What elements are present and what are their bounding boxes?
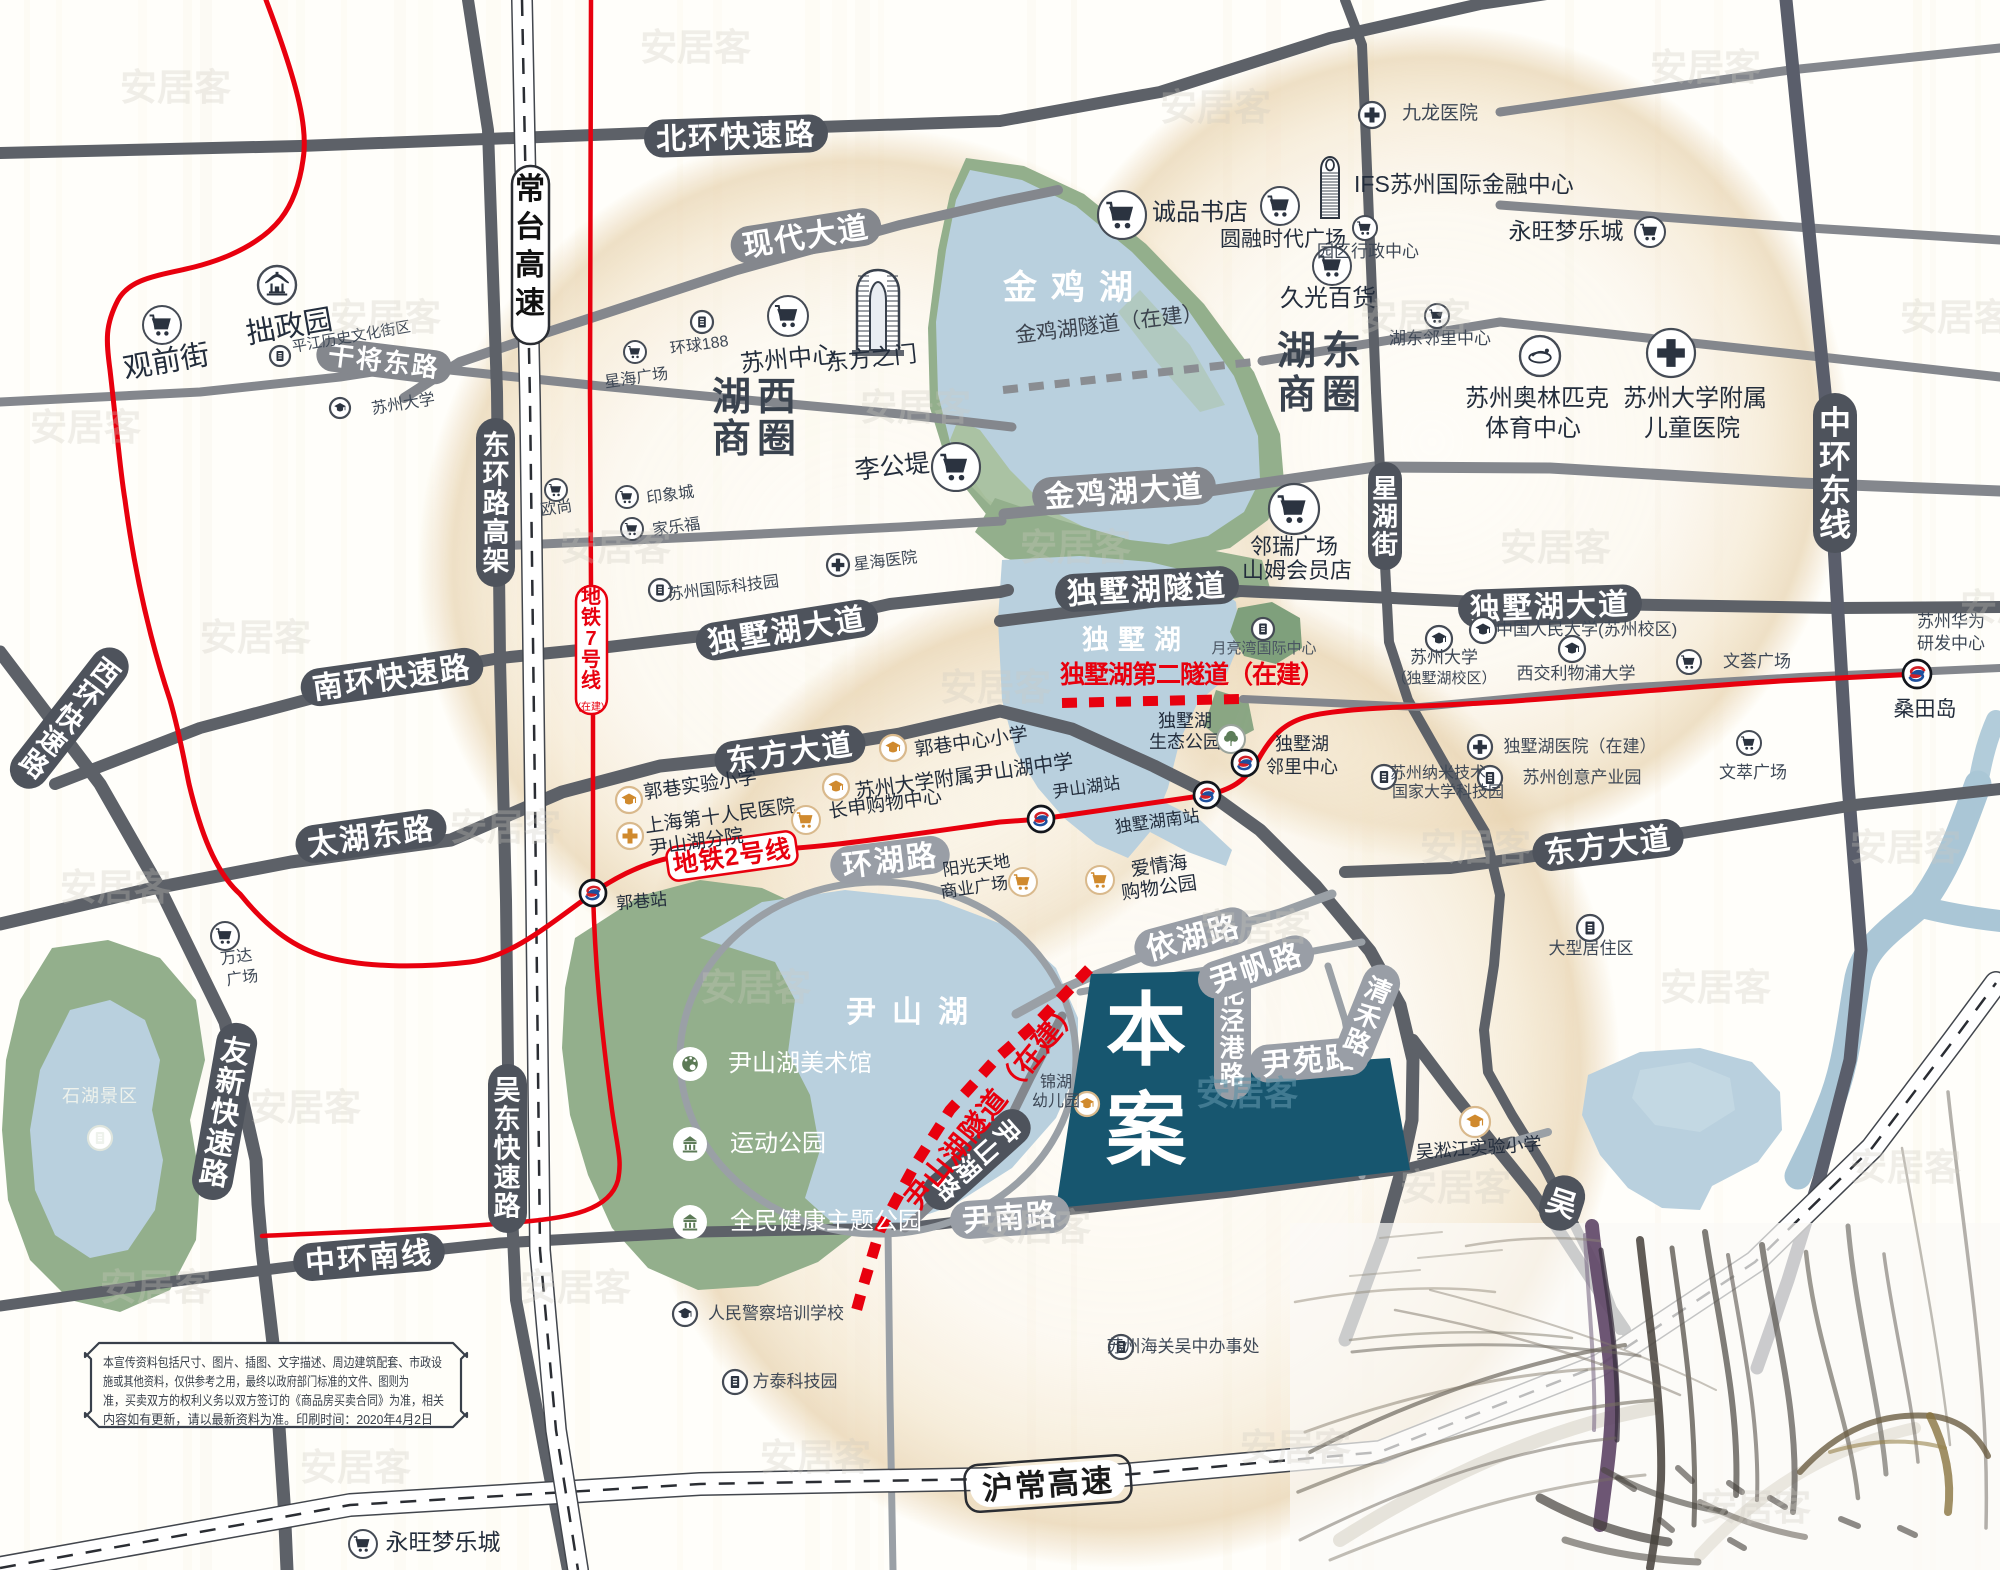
- svg-text:北环快速路: 北环快速路: [656, 118, 817, 157]
- svg-text:快: 快: [494, 1134, 522, 1164]
- svg-text:湖: 湖: [1372, 501, 1398, 531]
- svg-text:路: 路: [494, 1191, 522, 1222]
- svg-text:中: 中: [1819, 405, 1851, 441]
- svg-text:邻瑞广场: 邻瑞广场: [1250, 534, 1338, 559]
- svg-text:安居客: 安居客: [1850, 1147, 1961, 1188]
- svg-text:安居客: 安居客: [1650, 47, 1761, 88]
- svg-text:锦湖: 锦湖: [1040, 1073, 1072, 1091]
- svg-text:铁: 铁: [581, 605, 601, 629]
- svg-text:九龙医院: 九龙医院: [1402, 102, 1478, 124]
- svg-text:安居客: 安居客: [1420, 827, 1531, 868]
- svg-text:星: 星: [1372, 473, 1398, 503]
- svg-text:文萃广场: 文萃广场: [1719, 763, 1787, 782]
- svg-text:东: 东: [483, 430, 510, 461]
- svg-text:东: 东: [494, 1104, 521, 1135]
- svg-text:文荟广场: 文荟广场: [1723, 652, 1791, 671]
- svg-text:港: 港: [1219, 1034, 1245, 1063]
- svg-text:安居客: 安居客: [200, 617, 311, 658]
- svg-text:体育中心: 体育中心: [1485, 415, 1581, 442]
- svg-text:安居客: 安居客: [940, 667, 1051, 708]
- svg-text:线: 线: [1819, 507, 1851, 543]
- svg-text:地: 地: [581, 585, 601, 608]
- svg-text:桑田岛: 桑田岛: [1894, 698, 1957, 721]
- svg-text:安居客: 安居客: [450, 807, 561, 848]
- svg-text:常: 常: [515, 173, 545, 206]
- svg-text:安居客: 安居客: [1660, 967, 1771, 1008]
- svg-text:永旺梦乐城: 永旺梦乐城: [386, 1529, 501, 1555]
- svg-text:月亮湾国际中心: 月亮湾国际中心: [1211, 640, 1316, 657]
- svg-text:独墅湖: 独墅湖: [1158, 711, 1212, 731]
- svg-text:全民健康主题公园: 全民健康主题公园: [730, 1208, 922, 1235]
- svg-text:湖西: 湖西: [712, 376, 802, 419]
- svg-text:环: 环: [1819, 439, 1851, 475]
- svg-text:方泰科技园: 方泰科技园: [753, 1372, 838, 1391]
- svg-text:施或其他资料，仅供参考之用，最终以政府部门标准的文件、图则为: 施或其他资料，仅供参考之用，最终以政府部门标准的文件、图则为: [103, 1374, 409, 1389]
- svg-text:安居客: 安居客: [1850, 827, 1961, 868]
- svg-text:西交利物浦大学: 西交利物浦大学: [1517, 664, 1636, 683]
- svg-text:台: 台: [515, 210, 545, 244]
- svg-text:安居客: 安居客: [60, 867, 171, 908]
- svg-text:街: 街: [1371, 529, 1398, 559]
- svg-text:安居客: 安居客: [980, 1207, 1091, 1248]
- svg-text:线: 线: [581, 668, 601, 692]
- svg-text:安居客: 安居客: [300, 1447, 411, 1488]
- svg-text:速: 速: [515, 287, 545, 320]
- svg-text:邻里中心: 邻里中心: [1266, 757, 1338, 777]
- svg-text:安居客: 安居客: [1700, 1487, 1811, 1528]
- svg-text:人民警察培训学校: 人民警察培训学校: [708, 1304, 844, 1323]
- svg-text:速: 速: [494, 1163, 521, 1193]
- svg-text:7: 7: [585, 628, 596, 650]
- svg-text:安居客: 安居客: [1500, 527, 1611, 568]
- svg-text:安居客: 安居客: [640, 27, 751, 68]
- svg-text:金鸡湖: 金鸡湖: [1002, 268, 1147, 307]
- svg-text:安居客: 安居客: [1960, 587, 2000, 628]
- svg-text:生态公园: 生态公园: [1149, 732, 1221, 752]
- svg-text:号: 号: [581, 648, 601, 671]
- svg-text:本宣传资料包括尺寸、图片、插图、文字描述、周边建筑配套、市政: 本宣传资料包括尺寸、图片、插图、文字描述、周边建筑配套、市政设: [103, 1355, 442, 1370]
- svg-text:安居客: 安居客: [1196, 1074, 1298, 1113]
- svg-text:安居客: 安居客: [700, 967, 811, 1008]
- svg-text:诚品书店: 诚品书店: [1152, 199, 1248, 226]
- svg-text:安居客: 安居客: [120, 67, 231, 108]
- svg-text:架: 架: [483, 547, 510, 577]
- svg-text:路: 路: [483, 488, 511, 519]
- svg-text:环: 环: [483, 460, 510, 490]
- svg-text:东: 东: [1819, 473, 1851, 509]
- svg-text:苏州纳米技术: 苏州纳米技术: [1390, 764, 1486, 782]
- svg-text:案: 案: [1106, 1086, 1187, 1175]
- svg-text:泾: 泾: [1219, 1008, 1244, 1036]
- svg-text:儿童医院: 儿童医院: [1644, 415, 1740, 442]
- svg-text:独墅湖: 独墅湖: [1082, 625, 1190, 655]
- svg-text:山姆会员店: 山姆会员店: [1242, 558, 1352, 583]
- svg-text:IFS苏州国际金融中心: IFS苏州国际金融中心: [1354, 171, 1574, 197]
- svg-text:安居客: 安居客: [560, 527, 671, 568]
- svg-text:安居客: 安居客: [250, 1087, 361, 1128]
- svg-text:吴: 吴: [494, 1076, 521, 1106]
- svg-text:幼儿园: 幼儿园: [1032, 1092, 1080, 1110]
- svg-text:中国人民大学(苏州校区): 中国人民大学(苏州校区): [1496, 620, 1677, 639]
- svg-text:高: 高: [483, 517, 510, 548]
- svg-text:安居客: 安居客: [520, 1267, 631, 1308]
- svg-text:独墅湖第二隧道（在建）: 独墅湖第二隧道（在建）: [1060, 660, 1324, 689]
- svg-text:安居客: 安居客: [1360, 297, 1471, 338]
- svg-text:高: 高: [515, 249, 545, 282]
- svg-text:苏州大学附属: 苏州大学附属: [1623, 385, 1767, 412]
- svg-text:商圈: 商圈: [1277, 374, 1367, 417]
- svg-text:安居客: 安居客: [100, 1267, 211, 1308]
- svg-text:安居客: 安居客: [1160, 87, 1271, 128]
- svg-text:湖东: 湖东: [1277, 330, 1367, 373]
- svg-text:商圈: 商圈: [712, 418, 802, 461]
- svg-text:安居客: 安居客: [760, 1437, 871, 1478]
- svg-text:运动公园: 运动公园: [730, 1130, 826, 1157]
- svg-text:安居客: 安居客: [330, 297, 441, 338]
- svg-text:研发中心: 研发中心: [1917, 634, 1985, 653]
- svg-text:独墅湖: 独墅湖: [1275, 734, 1329, 754]
- svg-text:石湖景区: 石湖景区: [62, 1086, 138, 1106]
- svg-text:安居客: 安居客: [1400, 1167, 1511, 1208]
- svg-text:大型居住区: 大型居住区: [1549, 939, 1634, 958]
- svg-text:园区行政中心: 园区行政中心: [1317, 242, 1419, 261]
- svg-text:内容如有更新，请以最新资料为准。印刷时间：2020年4月2日: 内容如有更新，请以最新资料为准。印刷时间：2020年4月2日: [103, 1412, 433, 1427]
- svg-text:安居客: 安居客: [1240, 1427, 1351, 1468]
- svg-text:国家大学科技园: 国家大学科技园: [1392, 783, 1504, 801]
- svg-text:(在建): (在建): [578, 700, 605, 713]
- svg-text:（独墅湖校区）: （独墅湖校区）: [1391, 670, 1496, 687]
- svg-text:尹山湖美术馆: 尹山湖美术馆: [728, 1050, 872, 1077]
- svg-text:苏州海关吴中办事处: 苏州海关吴中办事处: [1107, 1337, 1260, 1356]
- svg-text:准，买卖双方的权利义务以双方签订的《商品房买卖合同》为准，相: 准，买卖双方的权利义务以双方签订的《商品房买卖合同》为准，相关: [103, 1393, 444, 1408]
- svg-text:独墅湖医院（在建）: 独墅湖医院（在建）: [1504, 737, 1657, 756]
- svg-text:安居客: 安居客: [30, 407, 141, 448]
- svg-text:安居客: 安居客: [860, 387, 971, 428]
- svg-text:尹山湖: 尹山湖: [846, 996, 984, 1029]
- svg-text:安居客: 安居客: [1900, 297, 2000, 338]
- svg-text:安居客: 安居客: [1020, 527, 1131, 568]
- svg-text:苏州创意产业园: 苏州创意产业园: [1523, 768, 1642, 787]
- svg-text:安居客: 安居客: [1200, 907, 1311, 948]
- svg-text:本: 本: [1106, 986, 1186, 1075]
- svg-text:苏州奥林匹克: 苏州奥林匹克: [1465, 385, 1609, 412]
- svg-text:苏州大学: 苏州大学: [1410, 648, 1478, 667]
- svg-text:永旺梦乐城: 永旺梦乐城: [1509, 218, 1624, 244]
